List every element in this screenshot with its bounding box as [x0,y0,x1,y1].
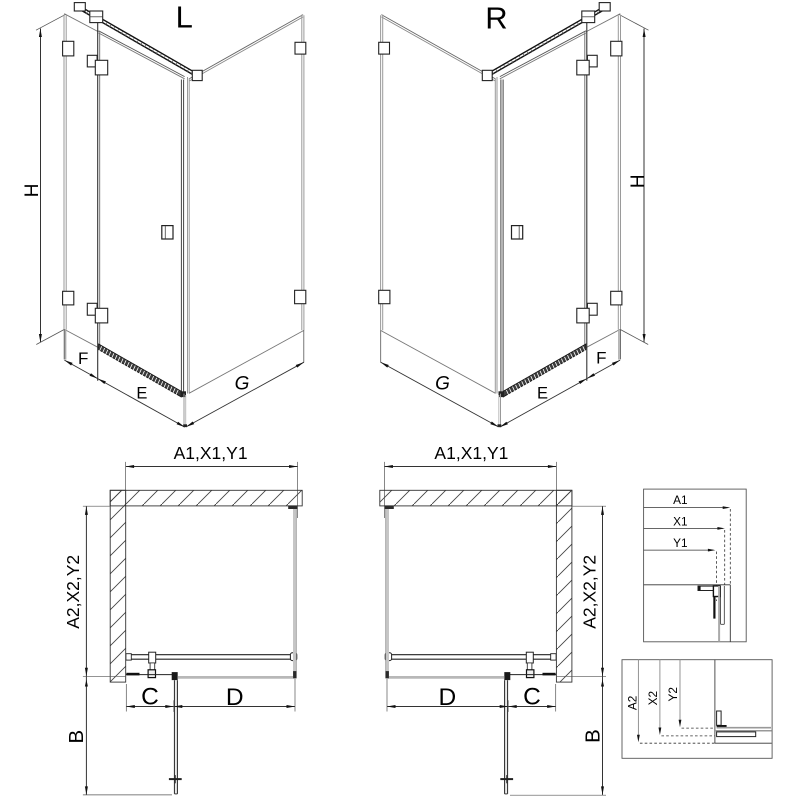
svg-text:A1,X1,Y1: A1,X1,Y1 [434,443,508,463]
svg-text:C: C [523,683,541,710]
svg-text:D: D [439,684,457,711]
svg-text:X2: X2 [646,691,660,705]
svg-text:C: C [141,683,159,710]
svg-text:F: F [596,349,606,368]
svg-text:A2: A2 [625,696,639,710]
svg-text:E: E [537,384,548,402]
svg-text:R: R [485,1,507,36]
svg-text:A1: A1 [673,493,687,507]
svg-text:G: G [435,373,450,394]
svg-text:X1: X1 [673,515,687,529]
svg-text:G: G [235,373,250,394]
svg-text:Y2: Y2 [666,687,680,701]
svg-text:A2,X2,Y2: A2,X2,Y2 [580,555,600,629]
svg-text:H: H [22,184,43,198]
svg-text:A2,X2,Y2: A2,X2,Y2 [63,555,83,629]
svg-text:Y1: Y1 [673,536,687,550]
svg-text:F: F [78,349,88,368]
svg-text:A1,X1,Y1: A1,X1,Y1 [174,443,248,463]
svg-text:D: D [226,684,244,711]
svg-text:B: B [65,730,88,744]
svg-text:H: H [628,174,649,188]
svg-text:E: E [136,384,147,402]
svg-text:B: B [581,729,604,743]
svg-text:L: L [176,0,193,35]
